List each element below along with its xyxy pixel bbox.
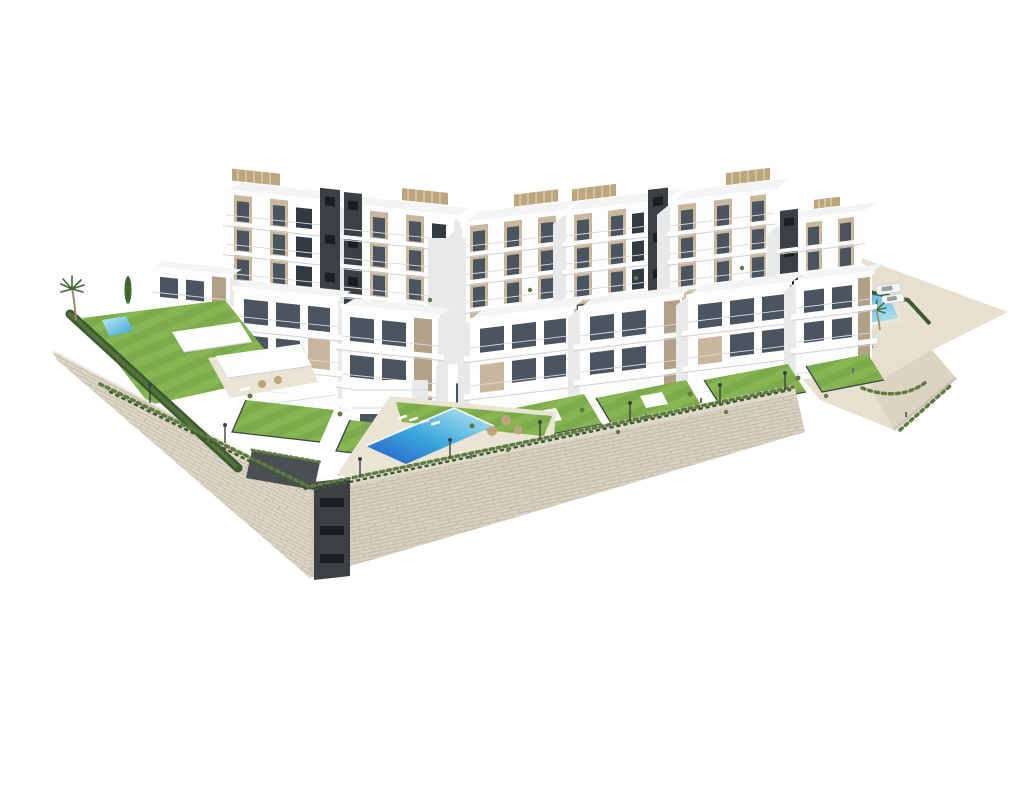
wall-service-shaft [312,476,352,580]
complex-render [0,0,1024,800]
render-canvas [0,0,1024,800]
